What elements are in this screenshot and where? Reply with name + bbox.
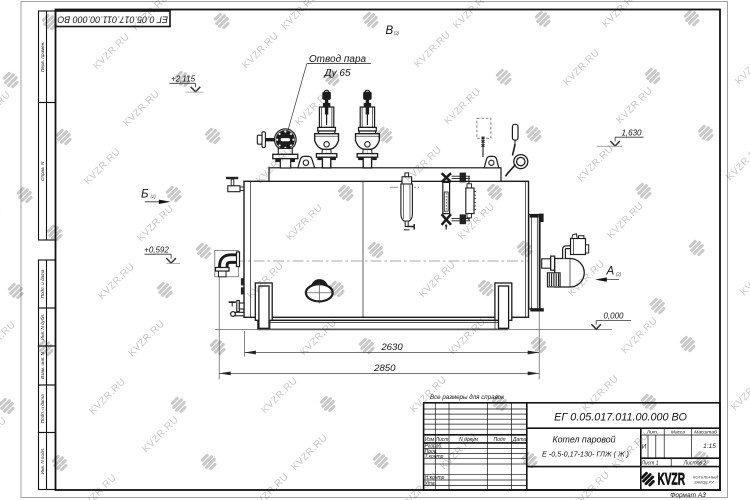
svg-text:KVZR: KVZR: [658, 471, 686, 489]
svg-text:KVZR.RU: KVZR.RU: [82, 146, 123, 187]
svg-text:KVZR.RU: KVZR.RU: [733, 46, 750, 87]
svg-text:Взам. инв. N: Взам. инв. N: [40, 351, 45, 378]
svg-text:Лист: Лист: [435, 437, 449, 443]
svg-text:KVZR.RU: KVZR.RU: [78, 472, 119, 500]
svg-text:Т.контр: Т.контр: [425, 454, 444, 460]
svg-text:Изм: Изм: [425, 437, 435, 443]
svg-text:KVZR.RU: KVZR.RU: [0, 89, 13, 130]
svg-text:Лист 1: Лист 1: [640, 461, 658, 467]
svg-text:KVZR.RU: KVZR.RU: [0, 204, 4, 245]
svg-text:2850: 2850: [373, 363, 396, 374]
svg-text:KVZR.RU: KVZR.RU: [96, 261, 137, 302]
svg-text:KVZR.RU: KVZR.RU: [571, 469, 612, 500]
svg-text:1:15: 1:15: [703, 443, 716, 450]
svg-text:В: В: [386, 25, 394, 37]
svg-text:Справ. N: Справ. N: [40, 161, 45, 181]
svg-text:(2): (2): [151, 194, 157, 199]
svg-text:KVZR.RU: KVZR.RU: [91, 31, 132, 72]
svg-text:KVZR.RU: KVZR.RU: [289, 432, 330, 473]
svg-text:KVZR.RU: KVZR.RU: [619, 315, 660, 356]
svg-text:(2): (2): [394, 31, 400, 36]
svg-text:KVZR.RU: KVZR.RU: [729, 372, 750, 413]
svg-text:А: А: [606, 266, 615, 278]
svg-text:(2): (2): [616, 272, 622, 277]
svg-text:KVZR.RU: KVZR.RU: [121, 88, 162, 129]
svg-text:Дата: Дата: [512, 437, 526, 443]
svg-text:KVZR.RU: KVZR.RU: [0, 319, 18, 360]
svg-text:KVZR.RU: KVZR.RU: [135, 203, 176, 244]
svg-text:ЕГ 0.05.017.011.00.000 ВО: ЕГ 0.05.017.011.00.000 ВО: [554, 412, 687, 424]
svg-text:Подп. и дата: Подп. и дата: [40, 394, 45, 423]
svg-text:Масштаб: Масштаб: [694, 430, 717, 436]
svg-text:KVZR.RU: KVZR.RU: [0, 415, 9, 456]
svg-text:KVZR.RU: KVZR.RU: [259, 375, 300, 416]
svg-text:KVZR.RU: KVZR.RU: [240, 30, 281, 71]
svg-text:Инв. N дубл.: Инв. N дубл.: [40, 314, 45, 341]
svg-text:KVZR.RU: KVZR.RU: [724, 142, 750, 183]
svg-text:KVZR.RU: KVZR.RU: [738, 257, 750, 298]
svg-text:0,000: 0,000: [603, 312, 624, 321]
svg-text:KVZR.RU: KVZR.RU: [614, 85, 655, 126]
svg-text:KVZR.RU: KVZR.RU: [126, 318, 167, 359]
svg-text:Перв. примен.: Перв. примен.: [40, 41, 45, 72]
svg-text:1,630: 1,630: [621, 129, 642, 138]
svg-text:Б: Б: [141, 189, 149, 201]
svg-text:Подп. и дата: Подп. и дата: [40, 269, 45, 298]
svg-text:KVZR.RU: KVZR.RU: [87, 376, 128, 417]
svg-text:KVZR.RU: KVZR.RU: [279, 0, 320, 32]
svg-text:KVZR.RU: KVZR.RU: [451, 0, 492, 31]
svg-text:2630: 2630: [380, 342, 403, 353]
svg-text:KVZR.RU: KVZR.RU: [600, 0, 641, 30]
svg-text:KVZR.RU: KVZR.RU: [575, 143, 616, 184]
svg-text:Котел паровой: Котел паровой: [552, 435, 615, 445]
svg-text:KVZR.RU: KVZR.RU: [250, 471, 291, 500]
svg-text:KVZR.RU: KVZR.RU: [605, 200, 646, 241]
svg-text:+0,592: +0,592: [144, 245, 169, 254]
svg-text:KVZR.RU: KVZR.RU: [140, 414, 181, 455]
svg-text:KVZR.RU: KVZR.RU: [580, 373, 621, 414]
svg-text:Инв. N подл.: Инв. N подл.: [40, 448, 45, 475]
svg-text:Подп: Подп: [494, 437, 506, 443]
svg-text:ЗАВОД.РУ: ЗАВОД.РУ: [694, 480, 714, 485]
svg-text:KVZR.RU: KVZR.RU: [412, 29, 453, 70]
svg-text:Формат А3: Формат А3: [670, 492, 706, 499]
svg-text:KVZR.RU: KVZR.RU: [561, 47, 602, 88]
svg-text:Масса: Масса: [671, 430, 686, 436]
